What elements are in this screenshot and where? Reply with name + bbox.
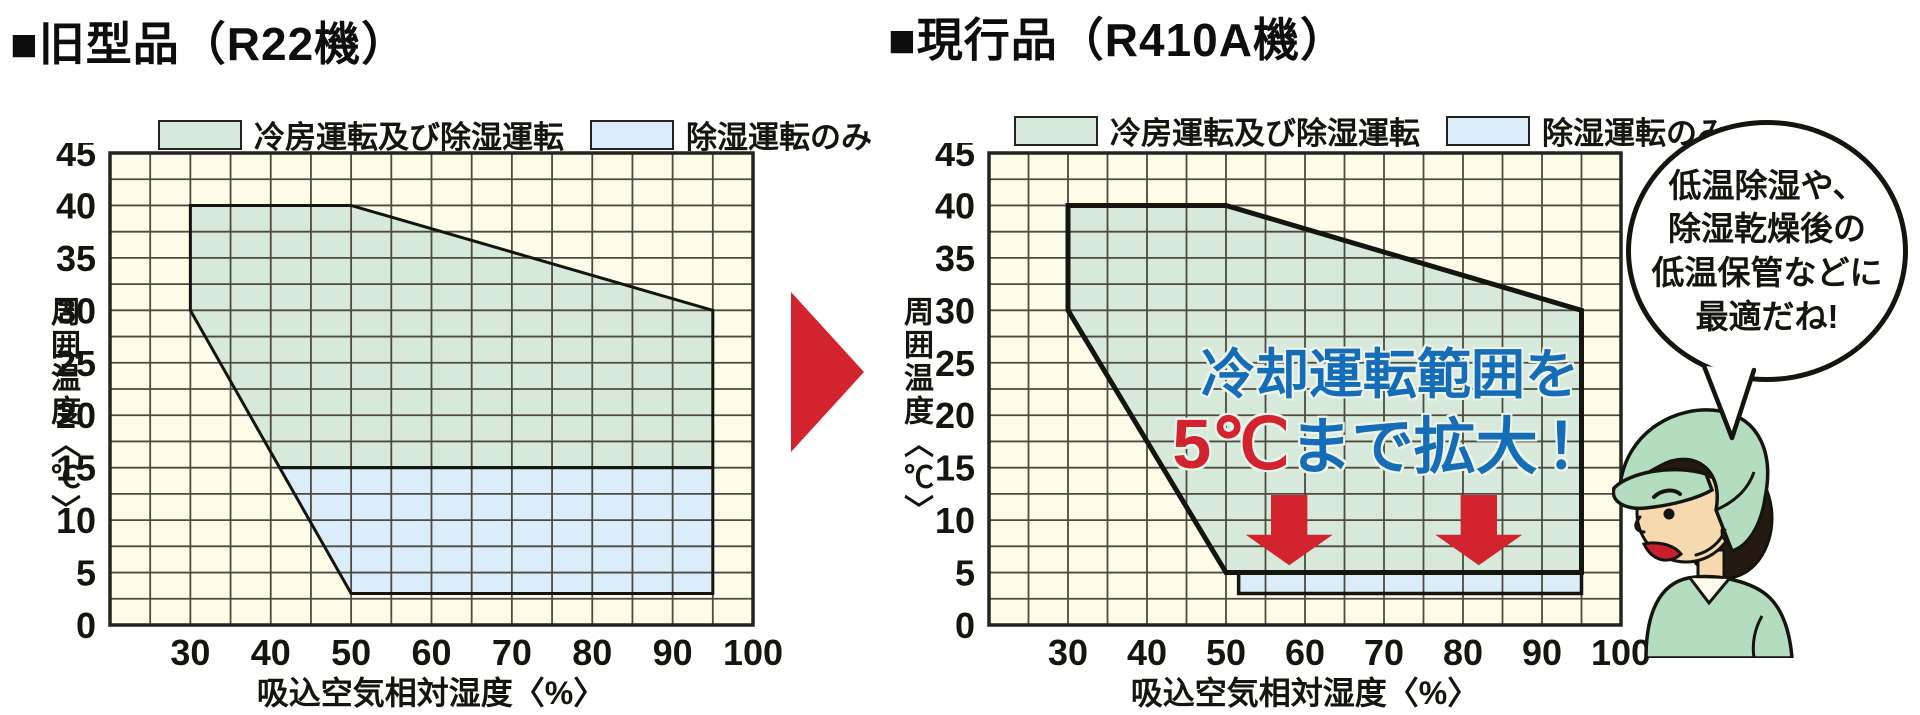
speech-bubble-line: 低温保管などに	[1652, 251, 1883, 295]
y-tick-label: 40	[56, 185, 96, 226]
x-tick-label: 60	[411, 632, 451, 673]
y-tick-label: 45	[56, 143, 96, 174]
transition-arrow-icon	[791, 292, 864, 452]
x-tick-label: 40	[251, 632, 291, 673]
y-axis-title-old: 周囲温度〈℃〉	[40, 296, 84, 527]
y-tick-label: 15	[935, 448, 975, 489]
x-tick-label: 80	[572, 632, 612, 673]
x-tick-label: 90	[653, 632, 693, 673]
y-tick-label: 30	[935, 290, 975, 331]
legend-current-chart: 冷房運転及び除湿運転 除湿運転のみ	[1014, 108, 1742, 153]
x-tick-label: 70	[492, 632, 532, 673]
y-tick-label: 40	[935, 185, 975, 226]
character-eye	[1664, 509, 1675, 520]
speech-bubble-line: 最適だね!	[1696, 295, 1839, 339]
y-tick-label: 35	[935, 238, 975, 279]
x-axis-title-old: 吸込空気相対湿度〈%〉	[171, 668, 691, 714]
region-dehumidify_only	[1239, 573, 1582, 594]
x-tick-label: 100	[723, 632, 783, 673]
y-tick-label: 35	[56, 238, 96, 279]
infographic-canvas: ■旧型品（R22機） ■現行品（R410A機） 冷房運転及び除湿運転 除湿運転の…	[0, 0, 1920, 715]
y-tick-label: 0	[76, 605, 96, 646]
old-model-title: ■旧型品（R22機）	[10, 8, 408, 74]
legend-swatch-dehumidify-only	[590, 120, 674, 150]
speech-bubble: 低温除湿や、 除湿乾燥後の 低温保管などに 最適だね!	[1626, 120, 1908, 382]
speech-bubble-line: 除湿乾燥後の	[1668, 207, 1866, 251]
y-tick-label: 5	[76, 553, 96, 594]
x-tick-label: 40	[1127, 632, 1167, 673]
x-axis-title-current: 吸込空気相対湿度〈%〉	[1045, 668, 1565, 714]
legend-swatch-dehumidify-only	[1446, 116, 1530, 146]
expansion-note-exclamation: ！	[1546, 413, 1608, 482]
x-tick-label: 30	[170, 632, 210, 673]
x-tick-label: 30	[1048, 632, 1088, 673]
y-tick-label: 45	[935, 143, 975, 174]
x-tick-label: 50	[1206, 632, 1246, 673]
x-tick-label: 60	[1285, 632, 1325, 673]
y-tick-label: 0	[955, 605, 975, 646]
x-tick-label: 70	[1364, 632, 1404, 673]
current-model-title: ■現行品（R410A機）	[888, 4, 1347, 70]
legend-swatch-cooling	[158, 120, 242, 150]
legend-label-cooling: 冷房運転及び除湿運転	[1110, 108, 1420, 153]
speech-bubble-line: 低温除湿や、	[1668, 164, 1865, 208]
x-tick-label: 50	[331, 632, 371, 673]
y-tick-label: 25	[935, 343, 975, 384]
y-axis-title-current: 周囲温度〈℃〉	[893, 296, 937, 527]
legend-old-chart: 冷房運転及び除湿運転 除湿運転のみ	[158, 112, 886, 157]
y-tick-label: 20	[935, 395, 975, 436]
region-dehumidify_only	[280, 468, 713, 594]
legend-label-cooling: 冷房運転及び除湿運転	[254, 112, 564, 157]
expansion-note-kakudai: まで拡大	[1290, 413, 1538, 482]
expansion-note-line2: 5℃まで拡大！	[1172, 396, 1608, 486]
x-tick-label: 80	[1443, 632, 1483, 673]
old-model-chart: 30405060708090100051015202530354045	[30, 143, 790, 715]
y-tick-label: 10	[935, 500, 975, 541]
y-tick-label: 5	[955, 553, 975, 594]
x-tick-label: 90	[1522, 632, 1562, 673]
expansion-note-5c: 5℃	[1172, 405, 1290, 483]
speech-bubble-tail	[1690, 358, 1780, 442]
legend-label-dehumidify-only: 除湿運転のみ	[686, 112, 872, 157]
legend-swatch-cooling	[1014, 116, 1098, 146]
